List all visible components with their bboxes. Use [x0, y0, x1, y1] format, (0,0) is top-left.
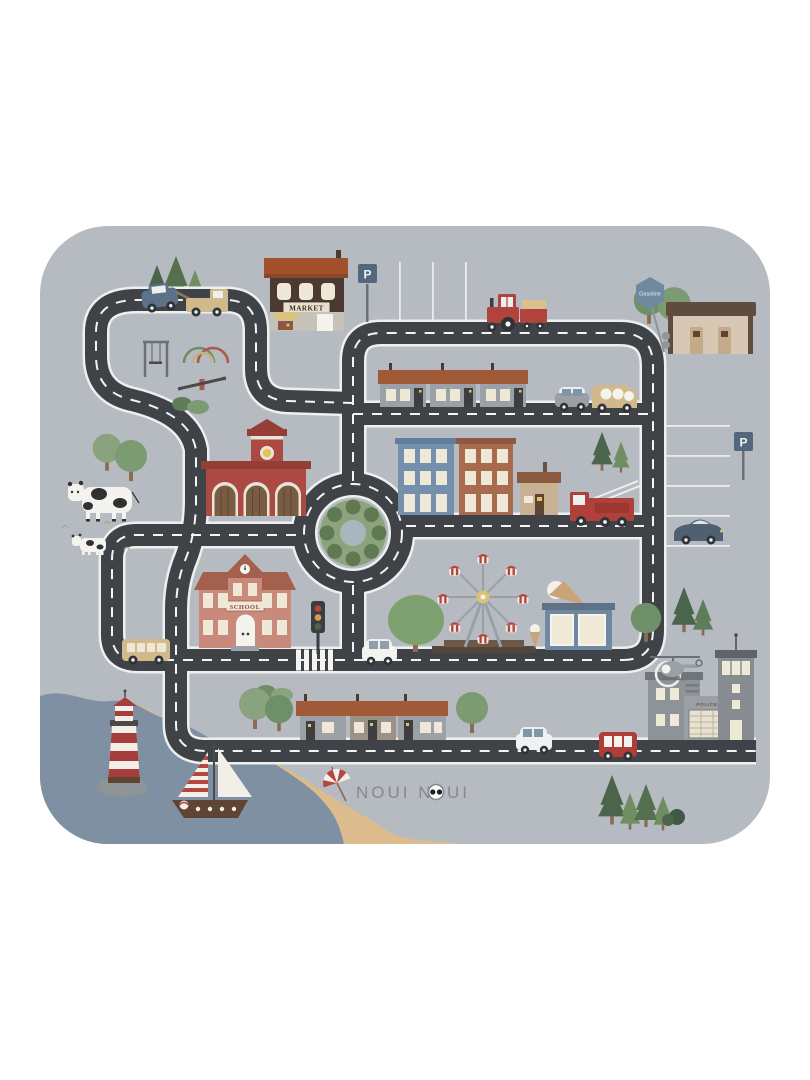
market-sign-text: MARKET [289, 305, 324, 313]
police-sign-text: POLICE [696, 702, 718, 708]
bus [122, 639, 170, 665]
product-image: MARKET P Gasoline [0, 0, 810, 1080]
garage-doors [212, 482, 301, 516]
logo-text-left: NOUI N [356, 783, 434, 802]
play-mat-illustration: MARKET P Gasoline [0, 0, 810, 1080]
school-sign-text: SCHOOL [230, 604, 261, 611]
market-building: MARKET [264, 250, 348, 331]
roundabout-island [320, 500, 387, 567]
bottom-red-car [599, 732, 637, 761]
parking-sign-letter: P [363, 268, 371, 282]
bush [187, 400, 209, 414]
parking-sign-letter: P [739, 436, 747, 450]
gasoline-sign-text: Gasoline [639, 292, 661, 298]
apartment-rust [456, 438, 516, 515]
apartment-blue [395, 438, 457, 515]
logo-text-right: UI [447, 783, 470, 802]
brand-logo: NOUI N UI [356, 783, 470, 802]
